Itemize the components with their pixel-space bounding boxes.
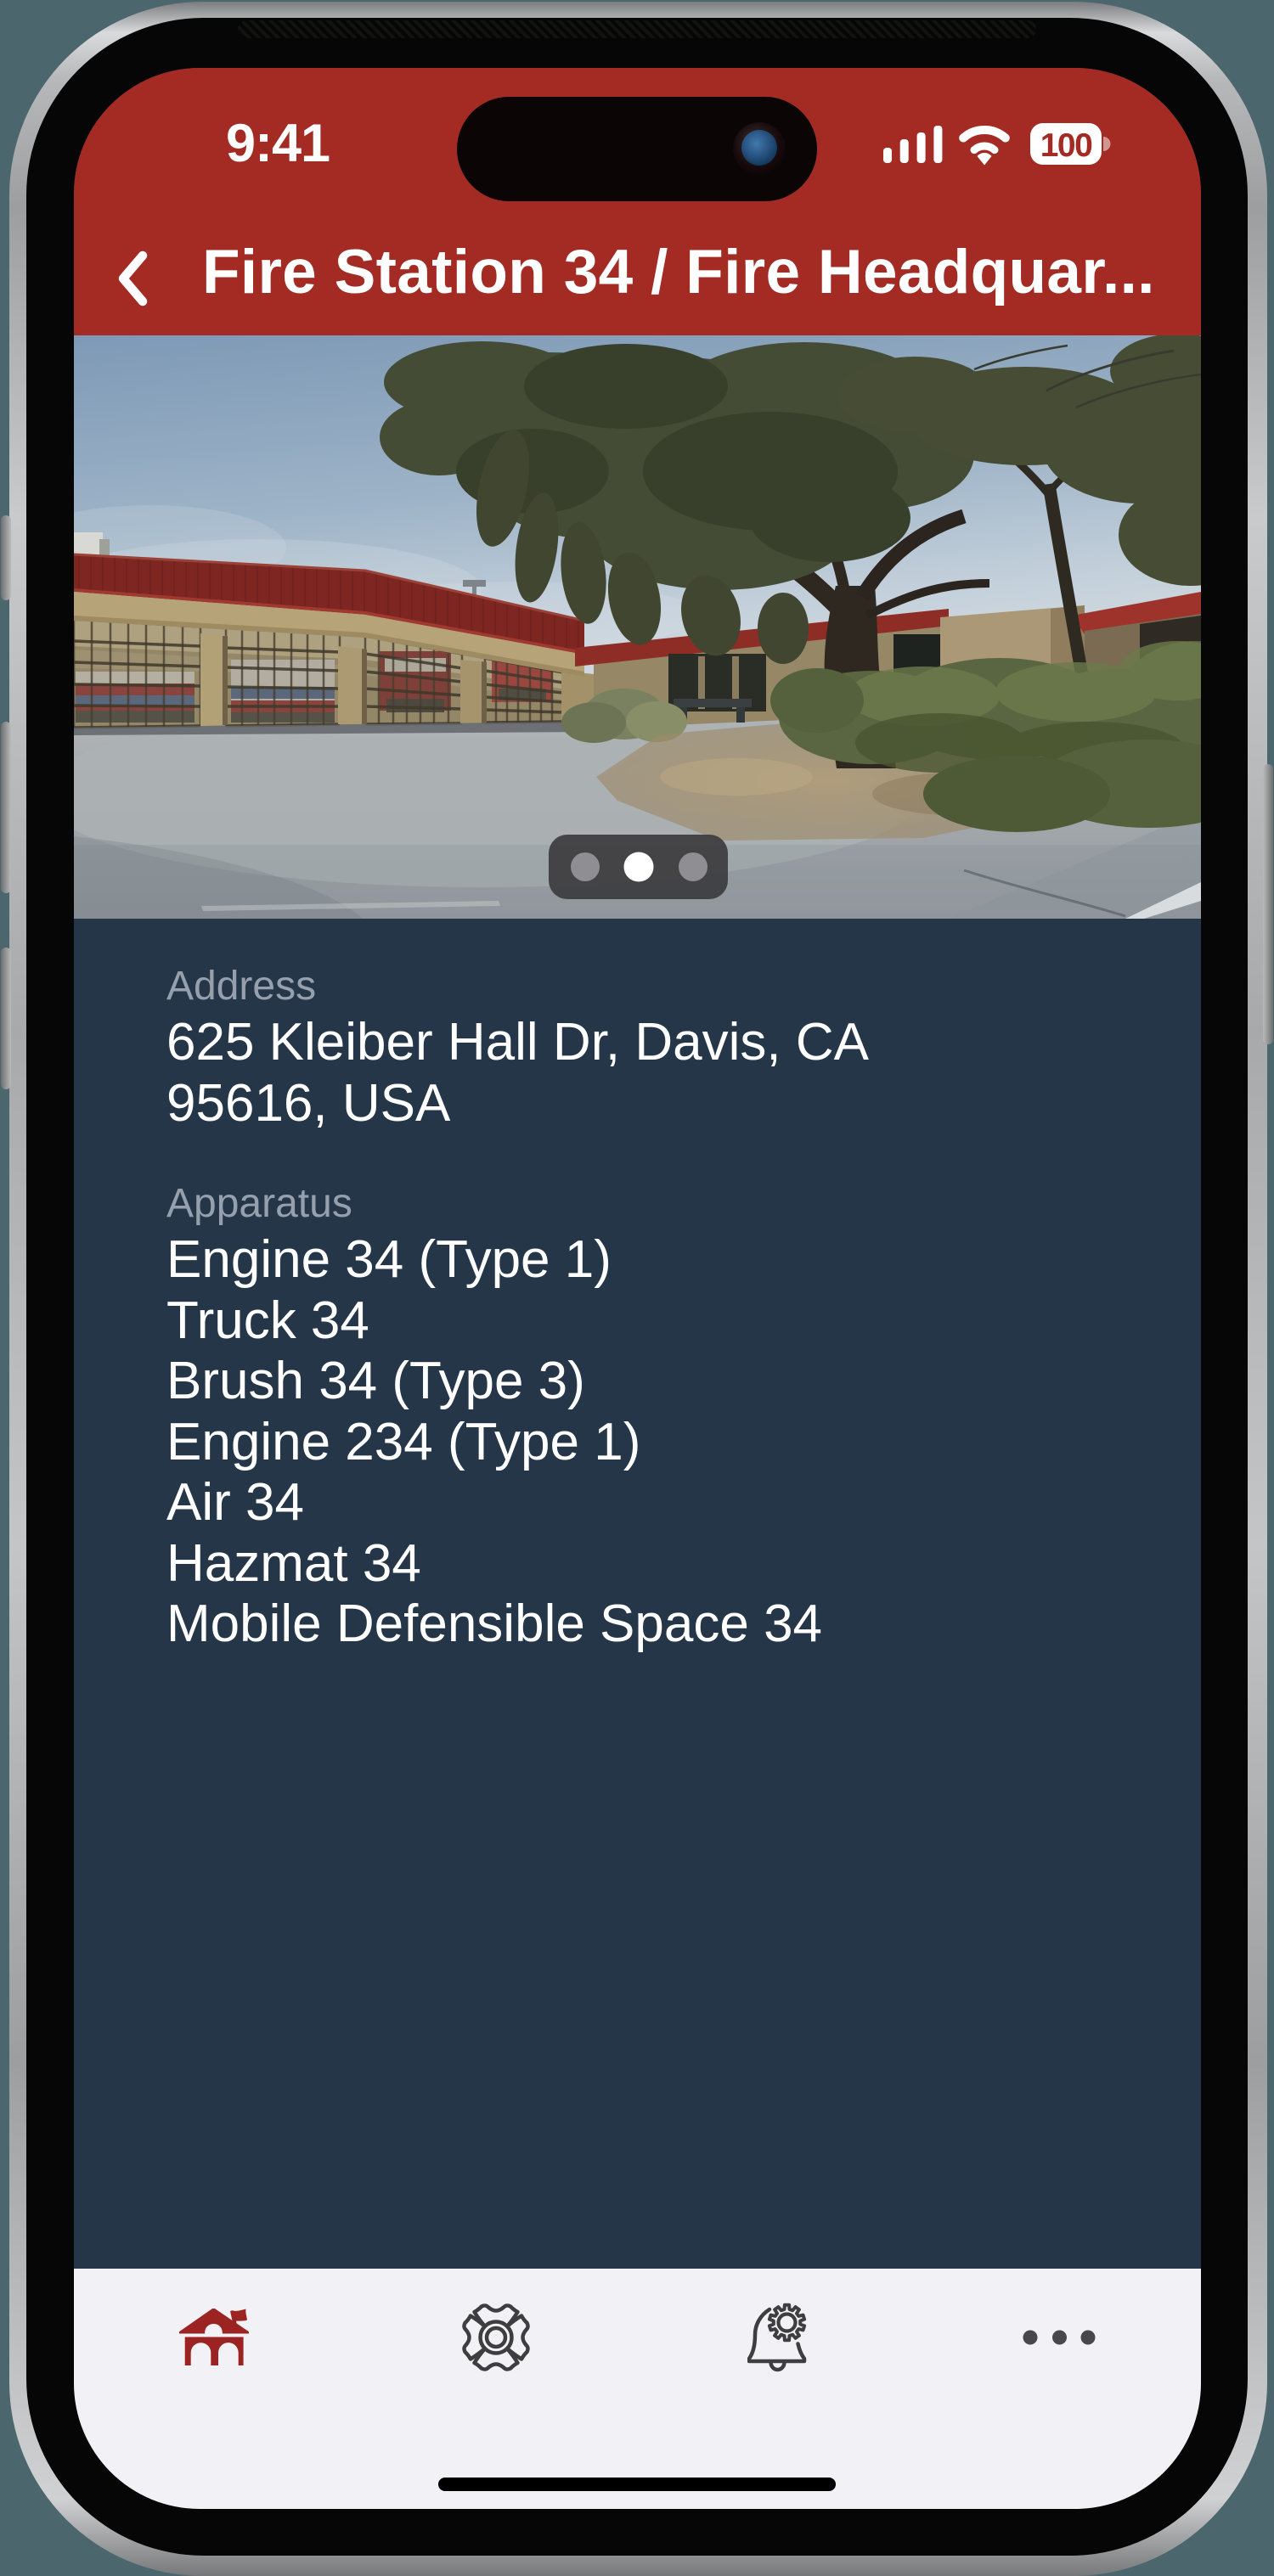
svg-text:100: 100 [1040,127,1092,164]
